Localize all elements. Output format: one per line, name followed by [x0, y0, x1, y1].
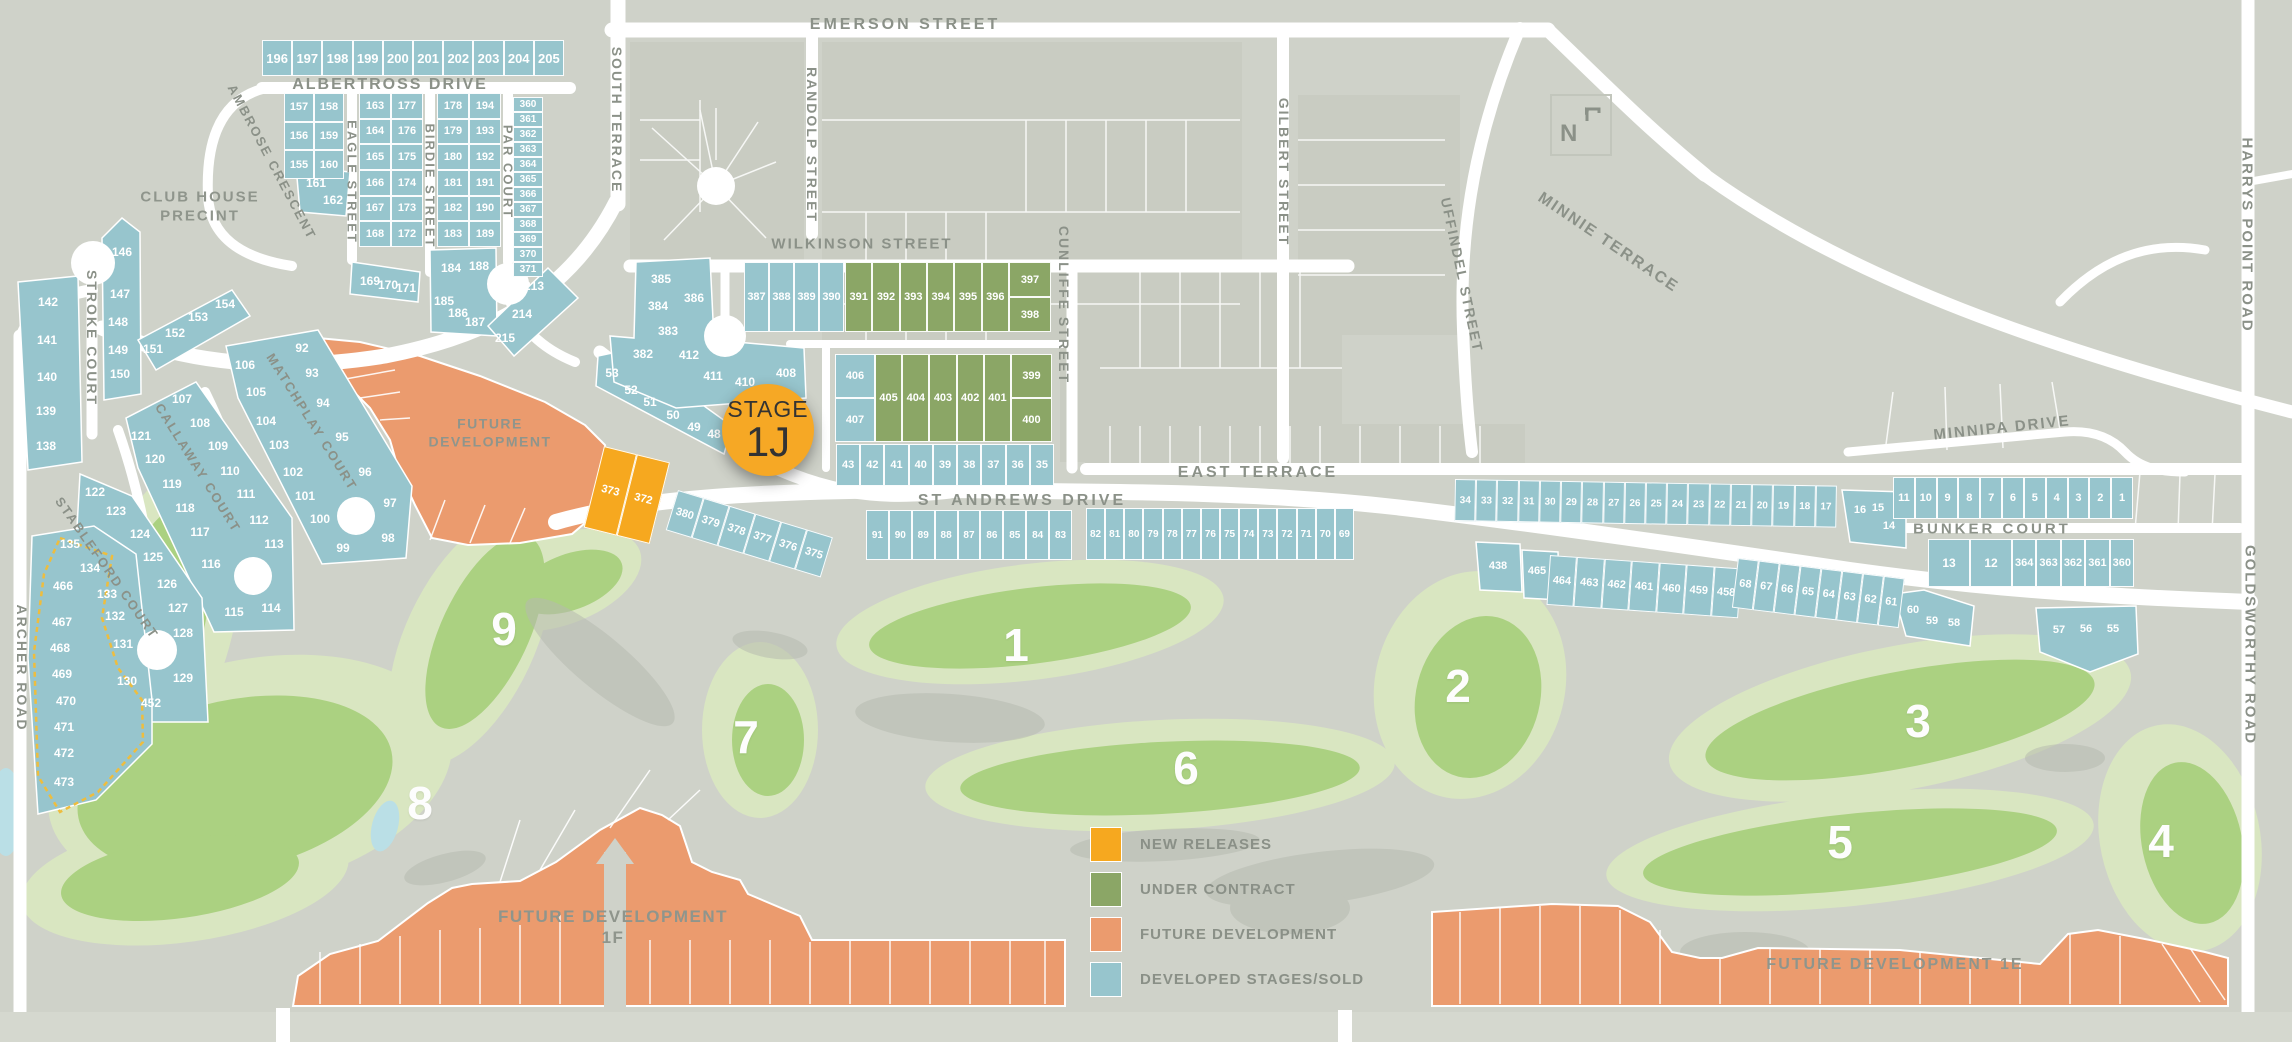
lot-4[interactable]: 4: [2046, 477, 2068, 519]
lot-177[interactable]: 177: [391, 93, 423, 119]
legend-item-contract: UNDER CONTRACT: [1090, 872, 1364, 907]
lot-396[interactable]: 396: [982, 262, 1009, 332]
lot-87[interactable]: 87: [958, 510, 981, 560]
lot-362[interactable]: 362: [2061, 539, 2085, 587]
lot-362[interactable]: 362: [513, 127, 543, 142]
lot-172[interactable]: 172: [391, 221, 423, 247]
legend-item-new: NEW RELEASES: [1090, 827, 1364, 862]
lot-29[interactable]: 29: [1560, 481, 1582, 523]
lot-159[interactable]: 159: [314, 122, 344, 151]
legend-swatch-new: [1090, 827, 1122, 862]
lot-398[interactable]: 398: [1009, 297, 1051, 332]
north-indicator: N: [1550, 94, 1612, 156]
lot-39[interactable]: 39: [933, 444, 957, 486]
legend-label-sold: DEVELOPED STAGES/SOLD: [1140, 971, 1364, 988]
lot-360[interactable]: 360: [513, 97, 543, 112]
lot-383[interactable]: 383: [658, 324, 678, 338]
legend-swatch-future: [1090, 917, 1122, 952]
lot-grid-green-391: 391392393394395396: [845, 262, 1009, 332]
lot-204[interactable]: 204: [504, 40, 534, 76]
lot-473[interactable]: 473: [54, 775, 74, 789]
lot-470[interactable]: 470: [56, 694, 76, 708]
lot-164[interactable]: 164: [359, 119, 391, 145]
lot-116[interactable]: 116: [201, 557, 220, 571]
lot-35[interactable]: 35: [1030, 444, 1054, 486]
lot-192[interactable]: 192: [469, 144, 501, 170]
lot-15[interactable]: 15: [1872, 502, 1884, 514]
lot-171[interactable]: 171: [396, 281, 416, 295]
lot-50[interactable]: 50: [666, 408, 679, 422]
lot-97[interactable]: 97: [383, 496, 396, 510]
lot-118[interactable]: 118: [175, 501, 194, 515]
lot-56[interactable]: 56: [2080, 623, 2092, 635]
lot-168[interactable]: 168: [359, 221, 391, 247]
lot-100[interactable]: 100: [310, 512, 330, 526]
lot-152[interactable]: 152: [165, 326, 185, 340]
lot-98[interactable]: 98: [381, 531, 394, 545]
lot-361[interactable]: 361: [513, 112, 543, 127]
lot-13[interactable]: 13: [1928, 539, 1970, 587]
lot-183[interactable]: 183: [437, 221, 469, 247]
lot-178[interactable]: 178: [437, 93, 469, 119]
lot-102[interactable]: 102: [283, 465, 303, 479]
lot-grid-col-406: 406407: [835, 354, 875, 442]
lot-25[interactable]: 25: [1645, 482, 1667, 524]
lot-215[interactable]: 215: [495, 331, 515, 345]
lot-7[interactable]: 7: [1980, 477, 2002, 519]
north-letter: N: [1560, 120, 1577, 148]
lot-406[interactable]: 406: [835, 354, 875, 398]
lot-401[interactable]: 401: [984, 354, 1011, 442]
lot-149[interactable]: 149: [108, 343, 128, 357]
lot-grid-row-196: 196197198199200201202203204205: [262, 40, 564, 76]
lot-38[interactable]: 38: [957, 444, 981, 486]
lot-132[interactable]: 132: [105, 609, 125, 623]
lot-49[interactable]: 49: [687, 420, 700, 434]
lot-163[interactable]: 163: [359, 93, 391, 119]
lot-166[interactable]: 166: [359, 170, 391, 196]
lot-133[interactable]: 133: [97, 587, 117, 601]
lot-165[interactable]: 165: [359, 144, 391, 170]
lot-399[interactable]: 399: [1011, 354, 1052, 398]
lot-196[interactable]: 196: [262, 40, 292, 76]
lot-86[interactable]: 86: [980, 510, 1003, 560]
stage-1j-badge[interactable]: STAGE 1J: [722, 384, 814, 476]
lot-94[interactable]: 94: [316, 396, 329, 410]
lot-181[interactable]: 181: [437, 170, 469, 196]
lot-123[interactable]: 123: [106, 504, 126, 518]
lot-452[interactable]: 452: [141, 696, 161, 710]
lot-364[interactable]: 364: [513, 157, 543, 172]
lot-147[interactable]: 147: [110, 287, 130, 301]
lot-202[interactable]: 202: [443, 40, 473, 76]
lot-205[interactable]: 205: [534, 40, 564, 76]
lot-388[interactable]: 388: [769, 262, 794, 332]
lot-52[interactable]: 52: [624, 383, 637, 397]
lot-71[interactable]: 71: [1297, 508, 1316, 560]
lot-174[interactable]: 174: [391, 170, 423, 196]
lot-463[interactable]: 463: [1574, 557, 1605, 609]
lot-153[interactable]: 153: [188, 310, 208, 324]
lot-90[interactable]: 90: [889, 510, 912, 560]
lot-142[interactable]: 142: [38, 295, 58, 309]
lot-407[interactable]: 407: [835, 398, 875, 442]
lot-126[interactable]: 126: [157, 577, 177, 591]
lot-191[interactable]: 191: [469, 170, 501, 196]
lot-203[interactable]: 203: [473, 40, 503, 76]
lot-189[interactable]: 189: [469, 221, 501, 247]
lot-grid-birdie-block: 178194179193180192181191182190183189: [437, 93, 501, 247]
lot-214[interactable]: 214: [512, 307, 532, 321]
lot-161[interactable]: 161: [306, 176, 326, 190]
lot-472[interactable]: 472: [54, 746, 74, 760]
lot-157[interactable]: 157: [284, 93, 314, 122]
legend-label-future: FUTURE DEVELOPMENT: [1140, 926, 1337, 943]
lot-59[interactable]: 59: [1926, 615, 1938, 627]
lot-115[interactable]: 115: [224, 605, 243, 619]
lot-366[interactable]: 366: [513, 187, 543, 202]
lot-411[interactable]: 411: [703, 369, 722, 383]
lot-199[interactable]: 199: [353, 40, 383, 76]
lot-22[interactable]: 22: [1709, 483, 1731, 525]
lot-469[interactable]: 469: [52, 667, 72, 681]
lot-grid-eagle-block: 163177164176165175166174167173168172: [359, 93, 423, 247]
lot-grid-row-34: 343332313029282726252423222120191817: [1454, 479, 1837, 528]
lot-57[interactable]: 57: [2053, 624, 2065, 636]
north-arrow-icon: [1583, 103, 1603, 123]
lot-365[interactable]: 365: [513, 172, 543, 187]
lot-99[interactable]: 99: [336, 541, 349, 555]
lot-106[interactable]: 106: [235, 358, 255, 372]
lot-156[interactable]: 156: [284, 122, 314, 151]
lot-114[interactable]: 114: [261, 601, 280, 615]
lot-461[interactable]: 461: [1629, 561, 1660, 613]
lot-389[interactable]: 389: [794, 262, 819, 332]
lot-151[interactable]: 151: [143, 342, 163, 356]
lot-69[interactable]: 69: [1335, 508, 1354, 560]
legend-item-future: FUTURE DEVELOPMENT: [1090, 917, 1364, 952]
lot-26[interactable]: 26: [1624, 482, 1646, 524]
lot-146[interactable]: 146: [112, 245, 132, 259]
lot-395[interactable]: 395: [954, 262, 981, 332]
lot-42[interactable]: 42: [860, 444, 884, 486]
lot-468[interactable]: 468: [50, 641, 70, 655]
lot-60[interactable]: 60: [1907, 604, 1919, 616]
lot-187[interactable]: 187: [465, 315, 485, 329]
lot-179[interactable]: 179: [437, 119, 469, 145]
lot-36[interactable]: 36: [1006, 444, 1030, 486]
lot-12[interactable]: 12: [1970, 539, 2012, 587]
lot-175[interactable]: 175: [391, 144, 423, 170]
lot-9[interactable]: 9: [1937, 477, 1959, 519]
lot-465[interactable]: 465: [1528, 565, 1546, 577]
lot-30[interactable]: 30: [1539, 480, 1561, 522]
lot-370[interactable]: 370: [513, 247, 543, 262]
lot-128[interactable]: 128: [173, 626, 193, 640]
lot-124[interactable]: 124: [130, 527, 150, 541]
lot-154[interactable]: 154: [215, 297, 235, 311]
lot-101[interactable]: 101: [295, 489, 315, 503]
lot-360[interactable]: 360: [2110, 539, 2134, 587]
lot-108[interactable]: 108: [190, 416, 210, 430]
lot-grid-row-11: 1110987654321: [1893, 477, 2133, 519]
lot-23[interactable]: 23: [1688, 483, 1710, 525]
lot-19[interactable]: 19: [1773, 485, 1795, 527]
lot-grid-row-387: 387388389390: [744, 262, 844, 332]
lot-390[interactable]: 390: [819, 262, 844, 332]
lot-402[interactable]: 402: [957, 354, 984, 442]
lot-397[interactable]: 397: [1009, 262, 1051, 297]
lot-21[interactable]: 21: [1730, 484, 1752, 526]
lot-382[interactable]: 382: [633, 347, 653, 361]
lot-200[interactable]: 200: [383, 40, 413, 76]
lot-grid-green-399: 399400: [1011, 354, 1052, 442]
lot-125[interactable]: 125: [143, 550, 163, 564]
lot-92[interactable]: 92: [295, 341, 308, 355]
lot-167[interactable]: 167: [359, 196, 391, 222]
lot-160[interactable]: 160: [314, 150, 344, 179]
lot-197[interactable]: 197: [292, 40, 322, 76]
lot-438[interactable]: 438: [1489, 560, 1507, 572]
lot-grid-green-405: 405404403402401: [875, 354, 1011, 442]
lot-139[interactable]: 139: [36, 404, 56, 418]
lot-363[interactable]: 363: [513, 142, 543, 157]
lot-76[interactable]: 76: [1201, 508, 1220, 560]
lot-1[interactable]: 1: [2111, 477, 2133, 519]
lot-464[interactable]: 464: [1547, 555, 1578, 607]
lot-34[interactable]: 34: [1454, 479, 1476, 521]
lot-367[interactable]: 367: [513, 202, 543, 217]
legend-label-new: NEW RELEASES: [1140, 836, 1272, 853]
lot-82[interactable]: 82: [1086, 508, 1105, 560]
lot-5[interactable]: 5: [2024, 477, 2046, 519]
lot-364[interactable]: 364: [2012, 539, 2036, 587]
lot-55[interactable]: 55: [2107, 623, 2119, 635]
lot-93[interactable]: 93: [305, 366, 318, 380]
lot-162[interactable]: 162: [323, 193, 343, 207]
lot-27[interactable]: 27: [1603, 482, 1625, 524]
lot-40[interactable]: 40: [909, 444, 933, 486]
lot-148[interactable]: 148: [108, 315, 128, 329]
lot-grid-row-13: 1312: [1928, 539, 2012, 587]
lot-131[interactable]: 131: [113, 637, 133, 651]
lot-213[interactable]: 213: [524, 279, 544, 293]
lot-104[interactable]: 104: [256, 414, 276, 428]
lot-10[interactable]: 10: [1915, 477, 1937, 519]
lot-182[interactable]: 182: [437, 196, 469, 222]
lot-83[interactable]: 83: [1049, 510, 1072, 560]
lot-51[interactable]: 51: [643, 395, 656, 409]
stage-badge-line2: 1J: [746, 421, 790, 463]
lot-8[interactable]: 8: [1958, 477, 1980, 519]
lot-140[interactable]: 140: [37, 370, 57, 384]
lot-462[interactable]: 462: [1601, 559, 1632, 611]
lot-107[interactable]: 107: [172, 392, 192, 406]
lot-77[interactable]: 77: [1182, 508, 1201, 560]
lot-155[interactable]: 155: [284, 150, 314, 179]
lot-73[interactable]: 73: [1258, 508, 1277, 560]
lot-96[interactable]: 96: [358, 465, 371, 479]
lot-158[interactable]: 158: [314, 93, 344, 122]
lot-403[interactable]: 403: [929, 354, 956, 442]
lot-grid-ambrose-block: 157158156159155160: [284, 93, 344, 179]
lot-405[interactable]: 405: [875, 354, 902, 442]
lot-112[interactable]: 112: [249, 513, 268, 527]
lot-459[interactable]: 459: [1683, 565, 1714, 617]
legend-swatch-sold: [1090, 962, 1122, 997]
lot-135[interactable]: 135: [60, 537, 80, 551]
lot-85[interactable]: 85: [1003, 510, 1026, 560]
lot-grid-row-364: 364363362361360: [2012, 539, 2134, 587]
lot-193[interactable]: 193: [469, 119, 501, 145]
lot-103[interactable]: 103: [269, 438, 289, 452]
lot-84[interactable]: 84: [1026, 510, 1049, 560]
lot-201[interactable]: 201: [413, 40, 443, 76]
lot-190[interactable]: 190: [469, 196, 501, 222]
lot-404[interactable]: 404: [902, 354, 929, 442]
lot-466[interactable]: 466: [53, 579, 73, 593]
lot-141[interactable]: 141: [37, 333, 57, 347]
map-legend: NEW RELEASESUNDER CONTRACTFUTURE DEVELOP…: [1090, 827, 1364, 997]
lot-471[interactable]: 471: [54, 720, 74, 734]
lot-91[interactable]: 91: [866, 510, 889, 560]
lot-75[interactable]: 75: [1220, 508, 1239, 560]
estate-masterplan-map: 1961971981992002012022032042051571581561…: [0, 0, 2292, 1042]
lot-129[interactable]: 129: [173, 671, 193, 685]
lot-110[interactable]: 110: [220, 464, 239, 478]
lot-48[interactable]: 48: [707, 427, 720, 441]
lot-58[interactable]: 58: [1948, 617, 1960, 629]
lot-119[interactable]: 119: [162, 477, 181, 491]
lot-95[interactable]: 95: [335, 430, 348, 444]
lot-130[interactable]: 130: [117, 674, 137, 688]
lot-194[interactable]: 194: [469, 93, 501, 119]
lot-467[interactable]: 467: [52, 615, 72, 629]
lot-grid-row-91: 919089888786858483: [866, 510, 1072, 560]
lot-81[interactable]: 81: [1105, 508, 1124, 560]
legend-item-sold: DEVELOPED STAGES/SOLD: [1090, 962, 1364, 997]
lot-31[interactable]: 31: [1518, 480, 1540, 522]
lot-150[interactable]: 150: [110, 367, 130, 381]
lot-387[interactable]: 387: [744, 262, 769, 332]
lot-392[interactable]: 392: [872, 262, 899, 332]
lot-28[interactable]: 28: [1582, 481, 1604, 523]
lot-33[interactable]: 33: [1475, 479, 1497, 521]
lot-79[interactable]: 79: [1143, 508, 1162, 560]
lot-53[interactable]: 53: [605, 366, 618, 380]
lot-120[interactable]: 120: [145, 452, 165, 466]
lot-412[interactable]: 412: [679, 348, 699, 362]
lot-113[interactable]: 113: [264, 537, 283, 551]
lot-17[interactable]: 17: [1815, 485, 1837, 527]
lot-grid-green-397: 397398: [1009, 262, 1051, 332]
lot-385[interactable]: 385: [651, 272, 671, 286]
lot-363[interactable]: 363: [2036, 539, 2060, 587]
lot-138[interactable]: 138: [36, 439, 56, 453]
lot-384[interactable]: 384: [648, 299, 668, 313]
lot-grid-col-360: 360361362363364365366367368369370371: [513, 97, 543, 277]
lot-2[interactable]: 2: [2089, 477, 2111, 519]
lot-72[interactable]: 72: [1277, 508, 1296, 560]
lot-180[interactable]: 180: [437, 144, 469, 170]
lot-89[interactable]: 89: [912, 510, 935, 560]
lot-400[interactable]: 400: [1011, 398, 1052, 442]
lot-184[interactable]: 184: [441, 261, 461, 275]
lot-121[interactable]: 121: [131, 429, 151, 443]
lot-74[interactable]: 74: [1239, 508, 1258, 560]
lot-70[interactable]: 70: [1316, 508, 1335, 560]
lot-117[interactable]: 117: [190, 525, 209, 539]
lot-18[interactable]: 18: [1794, 485, 1816, 527]
lot-369[interactable]: 369: [513, 232, 543, 247]
lot-grid-row-43: 434241403938373635: [836, 444, 1054, 486]
lot-24[interactable]: 24: [1666, 483, 1688, 525]
lot-37[interactable]: 37: [981, 444, 1005, 486]
lot-386[interactable]: 386: [684, 291, 704, 305]
lot-408[interactable]: 408: [776, 366, 796, 380]
legend-swatch-contract: [1090, 872, 1122, 907]
lot-393[interactable]: 393: [900, 262, 927, 332]
lot-6[interactable]: 6: [2002, 477, 2024, 519]
lot-78[interactable]: 78: [1163, 508, 1182, 560]
lot-361[interactable]: 361: [2085, 539, 2109, 587]
lot-111[interactable]: 111: [237, 487, 256, 501]
lot-368[interactable]: 368: [513, 217, 543, 232]
lot-grid-row-82: 8281807978777675747372717069: [1086, 508, 1354, 560]
lot-105[interactable]: 105: [246, 385, 266, 399]
lot-127[interactable]: 127: [168, 601, 188, 615]
lot-176[interactable]: 176: [391, 119, 423, 145]
lot-198[interactable]: 198: [322, 40, 352, 76]
lot-88[interactable]: 88: [935, 510, 958, 560]
lot-20[interactable]: 20: [1751, 484, 1773, 526]
lot-109[interactable]: 109: [208, 439, 228, 453]
lot-122[interactable]: 122: [85, 485, 105, 499]
lot-16[interactable]: 16: [1854, 504, 1866, 516]
lot-188[interactable]: 188: [469, 259, 489, 273]
lot-43[interactable]: 43: [836, 444, 860, 486]
lot-460[interactable]: 460: [1656, 563, 1687, 615]
lot-41[interactable]: 41: [884, 444, 908, 486]
lot-80[interactable]: 80: [1124, 508, 1143, 560]
lot-32[interactable]: 32: [1497, 480, 1519, 522]
lot-173[interactable]: 173: [391, 196, 423, 222]
lot-394[interactable]: 394: [927, 262, 954, 332]
legend-label-contract: UNDER CONTRACT: [1140, 881, 1296, 898]
lot-371[interactable]: 371: [513, 262, 543, 277]
lot-3[interactable]: 3: [2068, 477, 2090, 519]
lot-391[interactable]: 391: [845, 262, 872, 332]
lot-134[interactable]: 134: [80, 561, 100, 575]
lot-14[interactable]: 14: [1883, 520, 1895, 532]
lot-11[interactable]: 11: [1893, 477, 1915, 519]
